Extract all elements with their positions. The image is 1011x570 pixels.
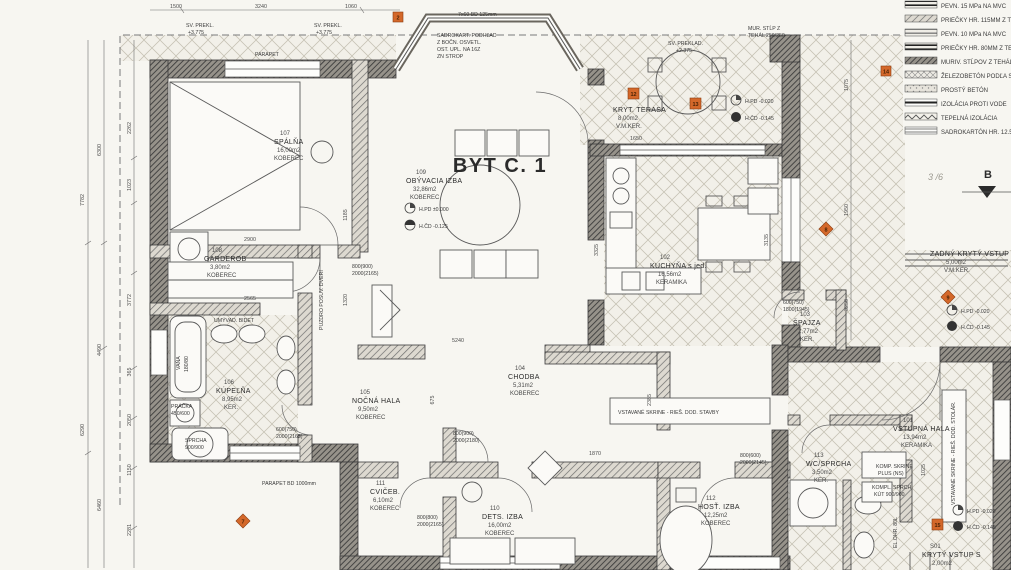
svg-text:2000(2165): 2000(2165) [276, 434, 303, 440]
svg-text:KOBEREC: KOBEREC [701, 521, 731, 527]
svg-text:600(750): 600(750) [783, 300, 804, 306]
svg-text:PRIEČKY HR. 115MM Z TEHÁL: PRIEČKY HR. 115MM Z TEHÁL [941, 17, 1011, 24]
svg-text:OBÝVACIA IZBA: OBÝVACIA IZBA [406, 176, 462, 185]
svg-text:TEHÁL 250/250: TEHÁL 250/250 [748, 32, 785, 39]
svg-text:110: 110 [490, 506, 500, 512]
washer-label: PRÁČKA [171, 403, 193, 410]
svg-text:KOBEREC: KOBEREC [356, 415, 386, 421]
svg-text:13: 13 [692, 102, 698, 108]
svg-text:2900: 2900 [244, 237, 256, 243]
shower-label: SPRCHA [185, 438, 207, 444]
svg-text:2565: 2565 [244, 296, 256, 302]
svg-text:101: 101 [903, 418, 914, 424]
svg-text:H.ČD -0.125: H.ČD -0.125 [419, 223, 448, 230]
svg-text:6300: 6300 [97, 144, 103, 156]
svg-text:103: 103 [800, 312, 811, 318]
svg-text:9,50m2: 9,50m2 [358, 407, 379, 413]
svg-text:KRYTÝ VSTUP S: KRYTÝ VSTUP S [922, 550, 981, 559]
svg-text:2000(2165): 2000(2165) [417, 522, 444, 528]
boiler-label: EL.OHR. 80L [893, 517, 899, 548]
bay-top-note: 7x60 BD 125mm [458, 12, 497, 18]
svg-text:PROSTÝ BETÓN: PROSTÝ BETÓN [941, 87, 988, 94]
svg-text:108: 108 [212, 248, 223, 254]
svg-text:+3.775: +3.775 [316, 30, 332, 36]
svg-text:GARDEROB: GARDEROB [204, 256, 246, 263]
svg-text:2385: 2385 [647, 394, 653, 406]
svg-text:15: 15 [934, 523, 940, 529]
svg-text:IZOLÁCIA PROTI VODE: IZOLÁCIA PROTI VODE [941, 101, 1007, 108]
svg-text:5240: 5240 [452, 338, 464, 344]
svg-text:2281: 2281 [127, 524, 133, 536]
svg-text:ŽELEZOBETÓN PODĽA STATIKY: ŽELEZOBETÓN PODĽA STATIKY [941, 72, 1011, 80]
svg-text:106: 106 [224, 380, 235, 386]
svg-text:8,95m2: 8,95m2 [222, 397, 243, 403]
parapet-note: PARAPET BD 1000mm [262, 481, 316, 487]
svg-text:PRIEČKY HR. 80MM Z TEHÁL: PRIEČKY HR. 80MM Z TEHÁL [941, 45, 1011, 52]
pillar-note: MUR. STĹP Z [748, 25, 780, 32]
svg-text:KER.: KER. [814, 478, 828, 484]
svg-text:1500: 1500 [170, 4, 182, 10]
svg-text:2262: 2262 [127, 122, 133, 134]
svg-text:32,86m2: 32,86m2 [413, 187, 437, 193]
svg-text:H.PD -0.020: H.PD -0.020 [745, 99, 774, 105]
svg-text:107: 107 [280, 131, 291, 137]
svg-text:KOBEREC: KOBEREC [274, 156, 304, 162]
svg-text:KÚPEĽŇA: KÚPEĽŇA [216, 386, 251, 395]
svg-text:H.ČD -0.145: H.ČD -0.145 [961, 324, 990, 331]
svg-text:1870: 1870 [589, 451, 601, 457]
svg-text:DETS. IZBA: DETS. IZBA [482, 514, 523, 521]
svg-text:675: 675 [430, 396, 436, 405]
svg-text:CHODBA: CHODBA [508, 374, 540, 381]
svg-text:14: 14 [883, 70, 890, 76]
svg-text:3,50m2: 3,50m2 [812, 470, 833, 476]
svg-text:1320: 1320 [343, 294, 349, 306]
svg-text:KERAMIKA: KERAMIKA [656, 280, 687, 286]
bay-ceiling-note: SADROKART. PODHĽAD [437, 33, 497, 39]
svg-text:VSTUPNÁ HALA: VSTUPNÁ HALA [893, 424, 950, 433]
svg-text:13,94m2: 13,94m2 [903, 435, 927, 441]
svg-text:365: 365 [127, 368, 133, 377]
svg-text:H.PD -0.020: H.PD -0.020 [961, 309, 990, 315]
svg-text:ZN STROP: ZN STROP [437, 54, 464, 60]
svg-text:WC/SPRCHA: WC/SPRCHA [806, 461, 852, 468]
svg-text:ZADNÝ KRYTÝ VSTUP: ZADNÝ KRYTÝ VSTUP [930, 249, 1009, 258]
svg-text:9: 9 [946, 296, 949, 302]
marker-12: 12 [628, 88, 639, 99]
svg-text:OST. UPL. NA 16Z: OST. UPL. NA 16Z [437, 47, 480, 53]
shower-stall-label: KOMPL. SPRCH. [872, 485, 913, 491]
wardrobe-band-note: VSTAVANÉ SKRINE - RIEŠ. DOD. STAVBY [618, 409, 720, 416]
floor-plan-canvas: 7782 6290 6300 4490 6460 2262 1023 3772 … [0, 0, 1011, 570]
svg-text:5,31m2: 5,31m2 [513, 383, 534, 389]
svg-text:3250: 3250 [844, 299, 850, 311]
svg-text:2050: 2050 [127, 414, 133, 426]
svg-text:KOBEREC: KOBEREC [485, 531, 515, 537]
svg-text:16,00m2: 16,00m2 [277, 148, 301, 154]
svg-text:800(900): 800(900) [453, 431, 474, 437]
svg-text:3,80m2: 3,80m2 [210, 265, 231, 271]
svg-text:900/900: 900/900 [185, 445, 204, 451]
svg-text:SADROKARTÓN HR. 12.5MM: SADROKARTÓN HR. 12.5MM [941, 129, 1011, 136]
svg-text:8,00m2: 8,00m2 [618, 116, 639, 122]
svg-text:PLUS (NS): PLUS (NS) [878, 471, 904, 477]
svg-text:1185: 1185 [343, 209, 349, 221]
pocket-door-note: PUZDRO POSUV. DVERÍ [318, 270, 325, 330]
svg-text:KOBEREC: KOBEREC [510, 391, 540, 397]
svg-text:1023: 1023 [127, 179, 133, 191]
svg-text:16,00m2: 16,00m2 [488, 523, 512, 529]
svg-text:1075: 1075 [844, 79, 850, 91]
plan-title: BYT C. 1 [453, 155, 547, 177]
svg-text:3772: 3772 [127, 294, 133, 306]
lintel-note-left: SV. PREKL. [186, 23, 214, 29]
svg-text:V.M.KER.: V.M.KER. [616, 124, 642, 130]
svg-text:1650: 1650 [630, 136, 642, 142]
svg-text:5,00m2: 5,00m2 [946, 260, 967, 266]
svg-text:104: 104 [515, 366, 526, 372]
svg-text:102: 102 [660, 255, 671, 261]
svg-text:+2.375: +2.375 [676, 48, 692, 54]
svg-text:KER.: KER. [800, 337, 814, 343]
pencil-note: 3 /6 [928, 172, 943, 182]
svg-text:+3.775: +3.775 [188, 30, 204, 36]
marker-13: 13 [690, 98, 701, 109]
svg-text:PEVN. 15 MPa NA MVC: PEVN. 15 MPa NA MVC [941, 4, 1007, 10]
svg-text:112: 112 [706, 496, 716, 502]
svg-text:H.PD ±0.000: H.PD ±0.000 [419, 207, 449, 213]
svg-text:7: 7 [241, 520, 244, 526]
bed-window-parapet: PARAPET [255, 52, 280, 58]
materials-legend: PEVN. 15 MPa NA MVC PRIEČKY HR. 115MM Z … [903, 0, 1011, 140]
svg-text:4490: 4490 [97, 344, 103, 356]
svg-text:600(750): 600(750) [276, 427, 297, 433]
svg-text:7782: 7782 [80, 194, 86, 206]
svg-text:2,77m2: 2,77m2 [798, 329, 819, 335]
svg-text:H.PD -0.020: H.PD -0.020 [967, 509, 996, 515]
svg-text:Z BOČN. OSVETL.: Z BOČN. OSVETL. [437, 39, 481, 46]
svg-text:S01: S01 [930, 544, 941, 550]
svg-text:1150: 1150 [127, 464, 133, 476]
svg-text:2000(2145): 2000(2145) [740, 460, 767, 466]
svg-text:ŠPAJZA: ŠPAJZA [793, 318, 821, 327]
svg-text:180/80: 180/80 [184, 356, 190, 372]
komp-skrine-note: KOMP. SKRINE [876, 464, 913, 470]
svg-text:1950: 1950 [844, 204, 850, 216]
svg-text:6460: 6460 [97, 499, 103, 511]
marker-15: 15 [932, 519, 943, 530]
svg-text:8: 8 [824, 228, 827, 234]
svg-text:12,25m2: 12,25m2 [704, 513, 728, 519]
marker-2: 2 [393, 12, 403, 22]
bathtub-label: VAŇA [175, 356, 182, 370]
svg-text:12: 12 [630, 92, 636, 98]
svg-text:6,10m2: 6,10m2 [373, 498, 394, 504]
svg-text:800(900): 800(900) [352, 264, 373, 270]
svg-text:113: 113 [814, 453, 824, 459]
svg-text:CVIČEB.: CVIČEB. [370, 487, 400, 496]
floor-plan-page: 7782 6290 6300 4490 6460 2262 1023 3772 … [0, 0, 1011, 570]
svg-text:6290: 6290 [80, 424, 86, 436]
svg-text:2: 2 [396, 16, 399, 22]
svg-text:H.ČD -0.145: H.ČD -0.145 [967, 524, 996, 531]
svg-text:KOBEREC: KOBEREC [370, 506, 400, 512]
svg-text:2000(2180): 2000(2180) [453, 438, 480, 444]
svg-text:KER.: KER. [224, 405, 238, 411]
svg-text:MURIV. STĹPOV Z TEHÁL: MURIV. STĹPOV Z TEHÁL [941, 59, 1011, 66]
svg-text:109: 109 [416, 170, 427, 176]
svg-text:KOBEREC: KOBEREC [410, 195, 440, 201]
svg-text:16,56m2: 16,56m2 [658, 272, 682, 278]
basin-bidet-label: UMÝVAD. BIDET [214, 317, 255, 324]
svg-text:800(600): 800(600) [740, 453, 761, 459]
svg-text:V.M.KER.: V.M.KER. [944, 268, 970, 274]
svg-text:3135: 3135 [764, 234, 770, 246]
svg-text:2,00m2: 2,00m2 [932, 561, 953, 567]
svg-text:TEPELNÁ IZOLÁCIA: TEPELNÁ IZOLÁCIA [941, 115, 997, 122]
svg-text:2000(2165): 2000(2165) [352, 271, 379, 277]
svg-text:HOSŤ. IZBA: HOSŤ. IZBA [698, 502, 740, 511]
svg-text:KUCHYŇA s jed.: KUCHYŇA s jed. [650, 261, 707, 270]
svg-text:1025: 1025 [921, 464, 927, 476]
svg-text:SPÁLŇA: SPÁLŇA [274, 137, 303, 146]
svg-text:111: 111 [376, 481, 386, 487]
svg-text:450/600: 450/600 [171, 411, 190, 417]
svg-text:H.ČD -0.145: H.ČD -0.145 [745, 115, 774, 122]
svg-text:3240: 3240 [255, 4, 267, 10]
svg-text:KOBEREC: KOBEREC [207, 273, 237, 279]
section-letter: B [984, 169, 992, 181]
lintel-note-terasa: SV. PREKLAD. [668, 41, 703, 47]
svg-text:KRYT. TERASA: KRYT. TERASA [613, 107, 666, 114]
svg-text:105: 105 [360, 390, 371, 396]
svg-text:PEVN. 10 MPa NA MVC: PEVN. 10 MPa NA MVC [941, 32, 1007, 38]
svg-text:KERAMIKA: KERAMIKA [901, 443, 932, 449]
svg-text:KÚT 900/900: KÚT 900/900 [874, 491, 905, 498]
svg-text:NOČNÁ HALA: NOČNÁ HALA [352, 396, 401, 405]
svg-text:1060: 1060 [345, 4, 357, 10]
marker-14: 14 [881, 66, 891, 76]
lintel-note-left2: SV. PREKL. [314, 23, 342, 29]
svg-text:800(800): 800(800) [417, 515, 438, 521]
svg-text:3325: 3325 [594, 244, 600, 256]
vertical-wardrobe-note: VSTAVANÉ SKRINE - RIEŠ. DOD. STOLÁR. [950, 402, 957, 505]
